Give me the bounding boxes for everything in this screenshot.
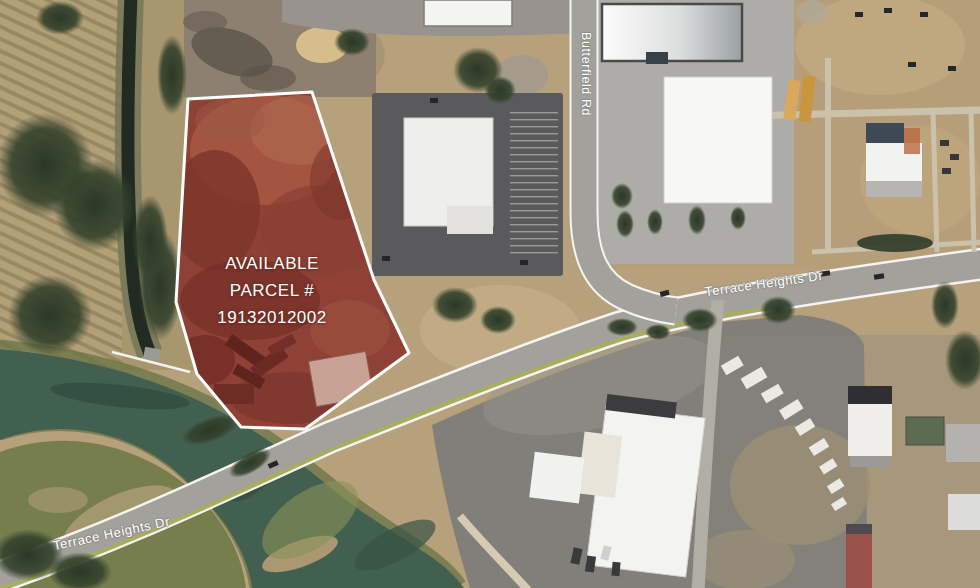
- building-big-white: [664, 77, 772, 203]
- building-dark-top: [848, 386, 892, 467]
- building-gradient-roof: [602, 4, 742, 61]
- building-top-center: [424, 0, 512, 26]
- terrain-svg: [0, 0, 980, 588]
- red-barn: [846, 524, 872, 588]
- building-ne: [866, 123, 922, 197]
- green-shed: [906, 417, 944, 445]
- parking-stripes: [510, 112, 558, 254]
- map-canvas: AVAILABLE PARCEL # 19132012002 Butterfie…: [0, 0, 980, 588]
- white-shed: [948, 494, 980, 530]
- gray-shed: [946, 424, 980, 462]
